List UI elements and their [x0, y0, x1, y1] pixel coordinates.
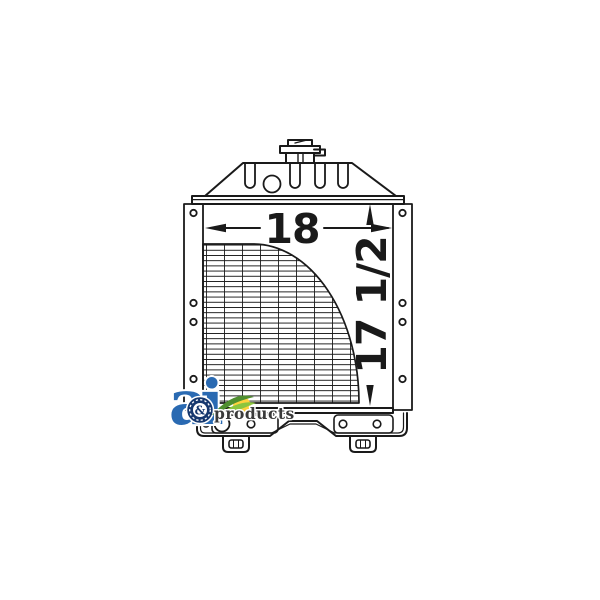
filler-neck-circle — [264, 176, 281, 193]
radiator-technical-drawing-page: 18 17 1/2 a i & products — [0, 0, 600, 600]
width-dimension-label: 18 — [264, 205, 319, 253]
arrow-right-icon — [371, 224, 392, 232]
logo-ampersand: & — [195, 404, 206, 418]
bolt-hole — [190, 300, 196, 306]
bolt-hole — [190, 210, 196, 216]
top-plate-illustration — [192, 196, 404, 204]
bolt-hole — [373, 420, 381, 428]
bolt-hole — [339, 420, 347, 428]
top-tank-illustration — [205, 163, 396, 196]
logo-wordmark: products — [214, 404, 295, 423]
mounting-feet — [223, 436, 376, 452]
radiator-cap-illustration — [280, 140, 325, 163]
height-dimension-label: 17 1/2 — [348, 236, 396, 373]
core-fin-grid — [203, 244, 359, 403]
right-bracket — [334, 415, 393, 433]
arrow-left-icon — [205, 224, 226, 232]
bolt-hole — [399, 210, 405, 216]
arrow-up-icon — [366, 204, 373, 225]
bolt-hole — [399, 376, 405, 382]
bolt-hole — [190, 319, 196, 325]
bolt-hole — [399, 300, 405, 306]
logo-emblem: & — [187, 397, 214, 424]
bolt-hole — [399, 319, 405, 325]
arrow-down-icon — [366, 385, 373, 406]
radiator-line-drawing: 18 17 1/2 a i & products — [0, 0, 600, 600]
